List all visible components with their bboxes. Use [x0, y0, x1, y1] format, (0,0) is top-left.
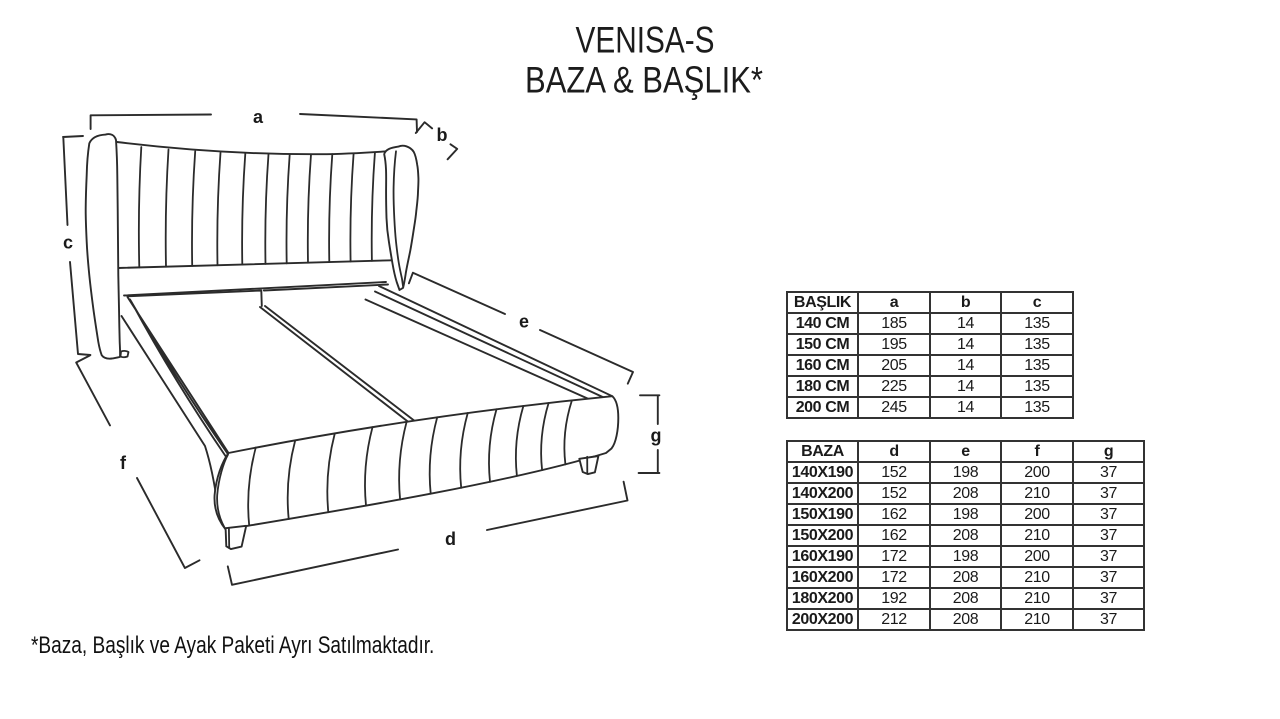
svg-text:e: e: [519, 312, 529, 332]
svg-text:g: g: [651, 426, 662, 446]
svg-text:VENISA-S: VENISA-S: [576, 20, 715, 61]
svg-text:c: c: [63, 233, 73, 253]
svg-text:d: d: [445, 529, 456, 549]
svg-text:b: b: [437, 125, 448, 145]
svg-text:BAZA & BAŞLIK*: BAZA & BAŞLIK*: [525, 59, 763, 100]
svg-text:a: a: [253, 107, 264, 127]
svg-text:f: f: [120, 453, 127, 473]
